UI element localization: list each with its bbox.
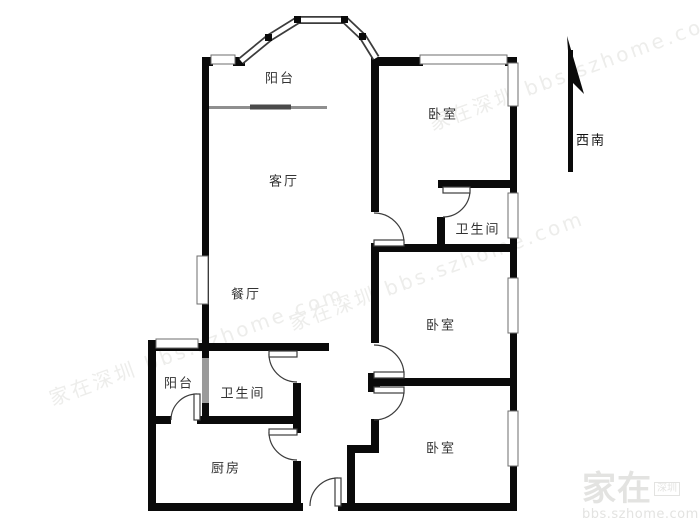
window-balcony2-divider (202, 358, 209, 403)
bay-window (241, 16, 376, 61)
door-arc-bedroom1 (374, 213, 404, 243)
wall-bedroom-divider (368, 378, 517, 386)
door-arc-bedroom3 (374, 390, 404, 420)
label-bedroom-bottom: 卧室 (426, 438, 456, 457)
label-balcony-top: 阳台 (265, 68, 295, 87)
label-bath-small: 卫生间 (220, 383, 265, 402)
wall-bath2-south (197, 416, 301, 424)
door-leaf-bedroom3 (374, 387, 404, 393)
wall-left (202, 57, 209, 352)
watermark-city: 深圳 (654, 482, 680, 496)
window-bath1-east (508, 193, 518, 238)
wall-left-lower (148, 340, 156, 511)
wall-bedroom2-west (371, 252, 379, 343)
label-compass-southwest: 西南 (576, 130, 606, 149)
wall-bottom-right (338, 503, 517, 511)
door-arc-entrance (310, 478, 338, 506)
door-leaf-bedroom2 (374, 372, 404, 378)
window-bedroom1-east (508, 63, 518, 106)
floorplan-canvas: 家在深圳 bbs.szhome.com 家在深圳 bbs.szhome.com … (0, 0, 700, 525)
door-leaf-bath2 (269, 351, 297, 357)
label-bedroom-top: 卧室 (428, 104, 458, 123)
window-bedroom2-east (508, 278, 518, 333)
label-dining-room: 餐厅 (231, 284, 261, 303)
balcony-living-sill-dark (250, 105, 291, 110)
wall-hall-east (347, 453, 355, 506)
label-bath-top: 卫生间 (455, 219, 500, 238)
door-arc-kitchen (269, 432, 297, 460)
wall-bedroom3-west-upper (371, 419, 379, 448)
door-arc-balcony2 (171, 394, 197, 420)
windows (156, 55, 518, 466)
window-bedroom3-east (508, 411, 518, 466)
wall-bedroom1-west (371, 57, 379, 212)
label-bedroom-mid: 卧室 (426, 315, 456, 334)
site-watermark: 家在 深圳 bbs.szhome.com (582, 472, 694, 521)
door-leaf-bath1 (443, 187, 470, 193)
door-leaf-bedroom1 (374, 240, 404, 246)
label-living-room: 客厅 (269, 171, 299, 190)
wall-balcony2-south (148, 416, 171, 424)
door-leaf-entrance (335, 478, 341, 506)
watermark-brand: 家在 (582, 472, 652, 506)
label-balcony-small: 阳台 (164, 373, 194, 392)
window-bedroom1-top (420, 55, 507, 64)
door-leaf-balcony2 (194, 394, 200, 420)
bay-window-outline (241, 20, 376, 61)
window-balcony2-north (156, 339, 198, 348)
wall-balcony2-divider-top (202, 343, 209, 359)
wall-kitchen-east-lower (293, 461, 301, 506)
label-kitchen: 厨房 (211, 458, 241, 477)
floorplan-drawing (0, 0, 700, 525)
door-arc-bath2 (269, 354, 297, 382)
door-arc-bedroom2 (374, 345, 404, 375)
door-arc-bath1 (443, 190, 470, 217)
wall-bottom-left (148, 503, 303, 511)
window-top-left (211, 55, 235, 64)
door-leaf-kitchen (269, 429, 297, 435)
wall-kitchen-east-upper (293, 383, 301, 433)
window-dining-west (197, 256, 208, 304)
compass-arrow (567, 36, 584, 172)
watermark-site-url: bbs.szhome.com (582, 508, 694, 521)
wall-jog (347, 445, 379, 453)
